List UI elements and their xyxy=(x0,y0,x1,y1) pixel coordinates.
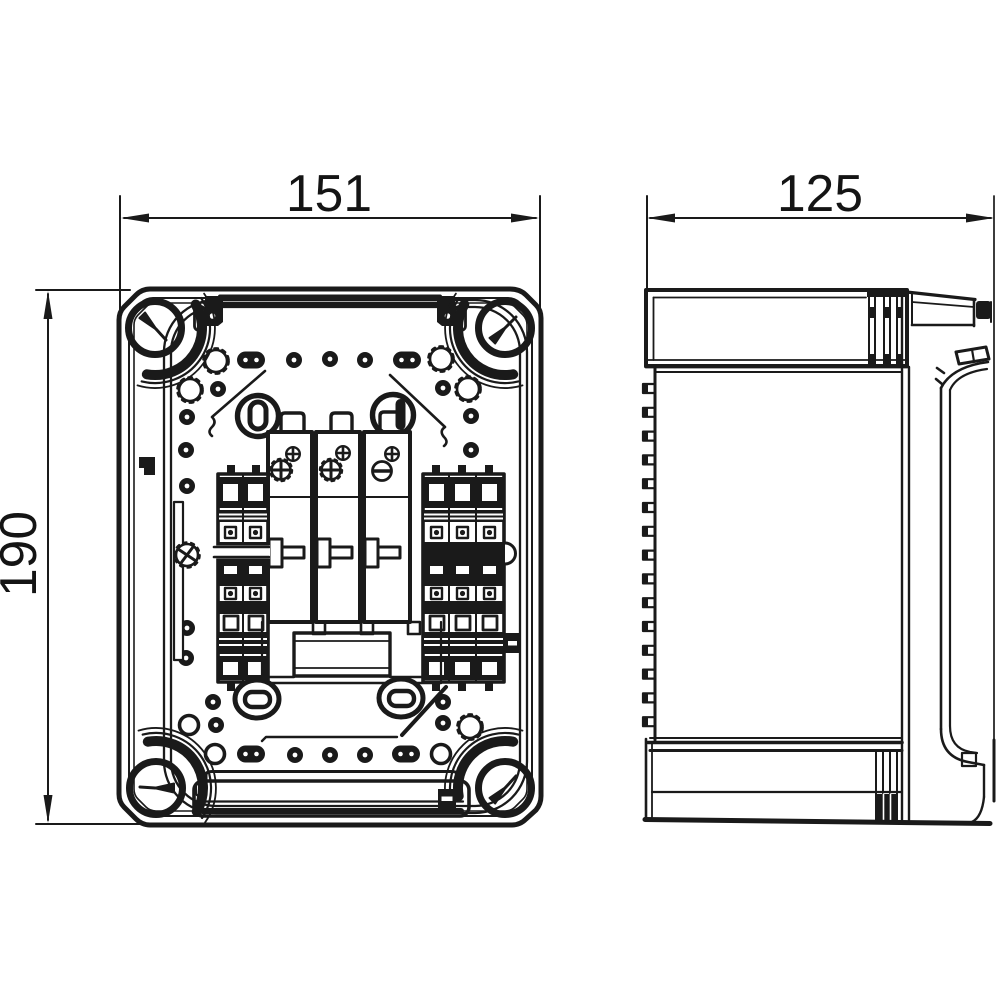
svg-text:125: 125 xyxy=(777,164,863,222)
svg-text:190: 190 xyxy=(0,511,47,597)
svg-text:151: 151 xyxy=(286,164,372,222)
